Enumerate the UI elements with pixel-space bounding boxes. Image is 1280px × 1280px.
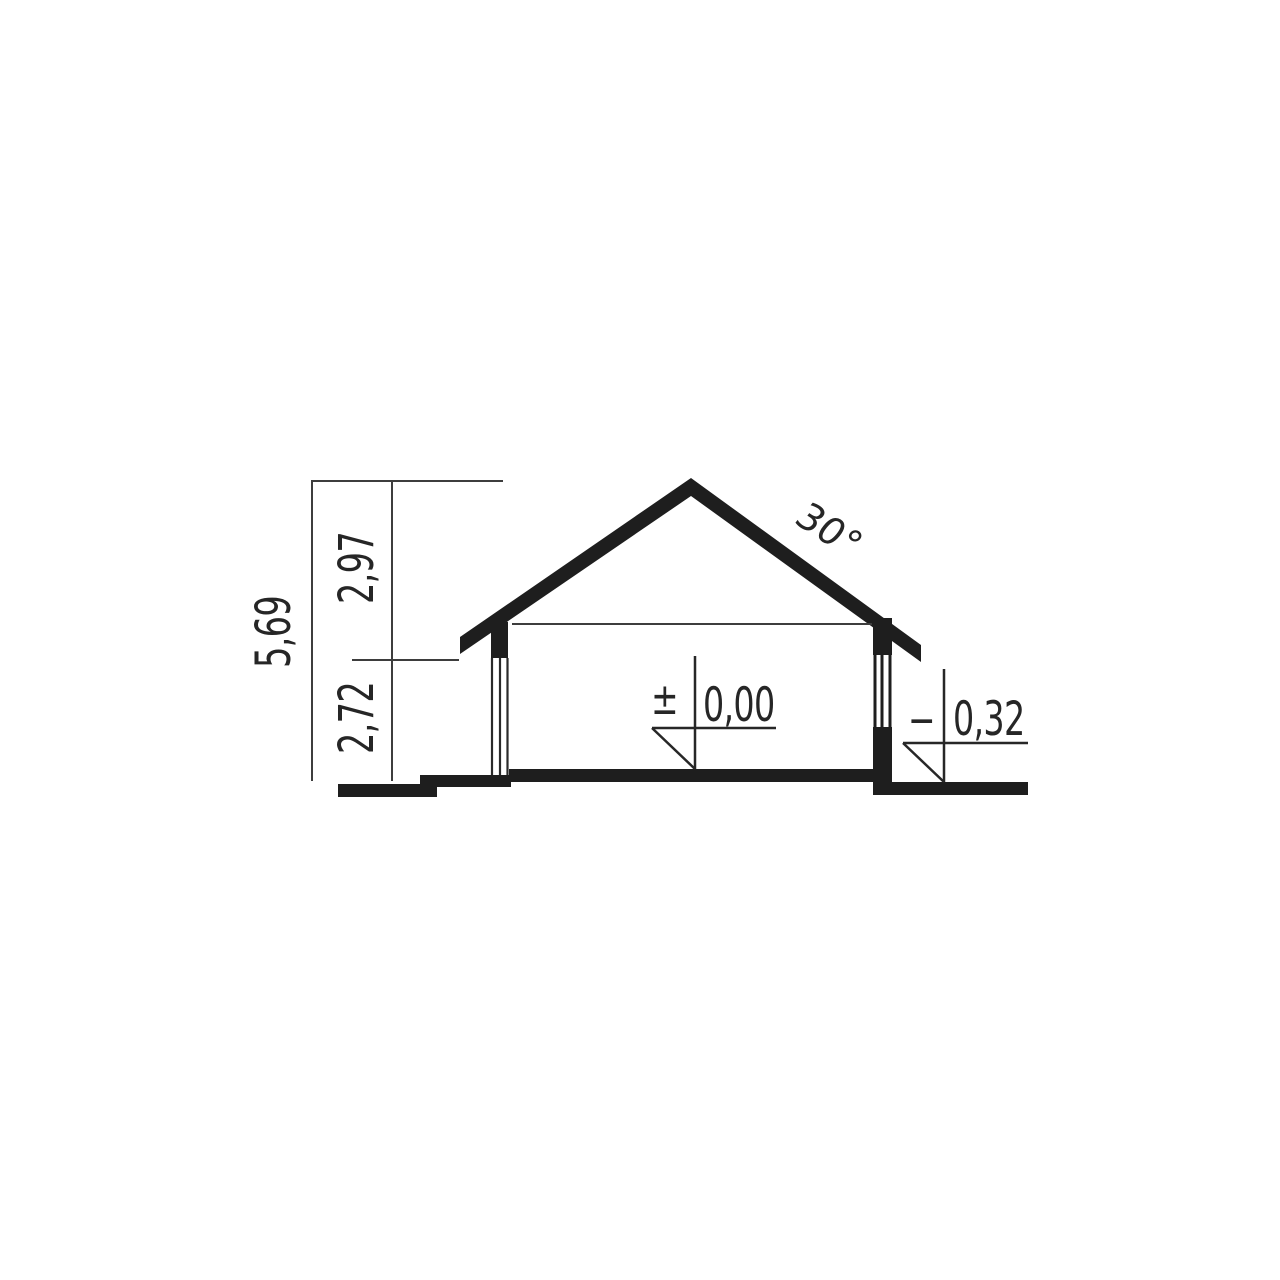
right-wall [872, 618, 893, 795]
floor-slab [509, 769, 892, 782]
floor-marker-diagonal [652, 728, 695, 769]
dimension-lower-height: 2,72 [332, 662, 382, 774]
section-linework [0, 0, 1280, 1280]
ground-level-sign: − [908, 699, 936, 743]
ground-level-value: 0,32 [953, 696, 1024, 743]
house-cross-section-drawing: 5,69 2,97 2,72 30° ± 0,00 − 0,32 [0, 0, 1280, 1280]
left-wall [489, 622, 510, 775]
ground-marker-diagonal [903, 743, 944, 782]
left-wall-head [491, 622, 508, 658]
floor-level-sign: ± [651, 678, 679, 722]
exterior-ground [891, 782, 1028, 795]
dimension-upper-height: 2,97 [332, 512, 382, 624]
terrace-step-lower [338, 784, 437, 797]
floor-level-value: 0,00 [703, 682, 774, 729]
terrace-steps [338, 775, 511, 797]
right-wall-head [873, 618, 892, 655]
dimension-total-height: 5,69 [249, 576, 299, 688]
right-wall-below-window [873, 727, 892, 795]
